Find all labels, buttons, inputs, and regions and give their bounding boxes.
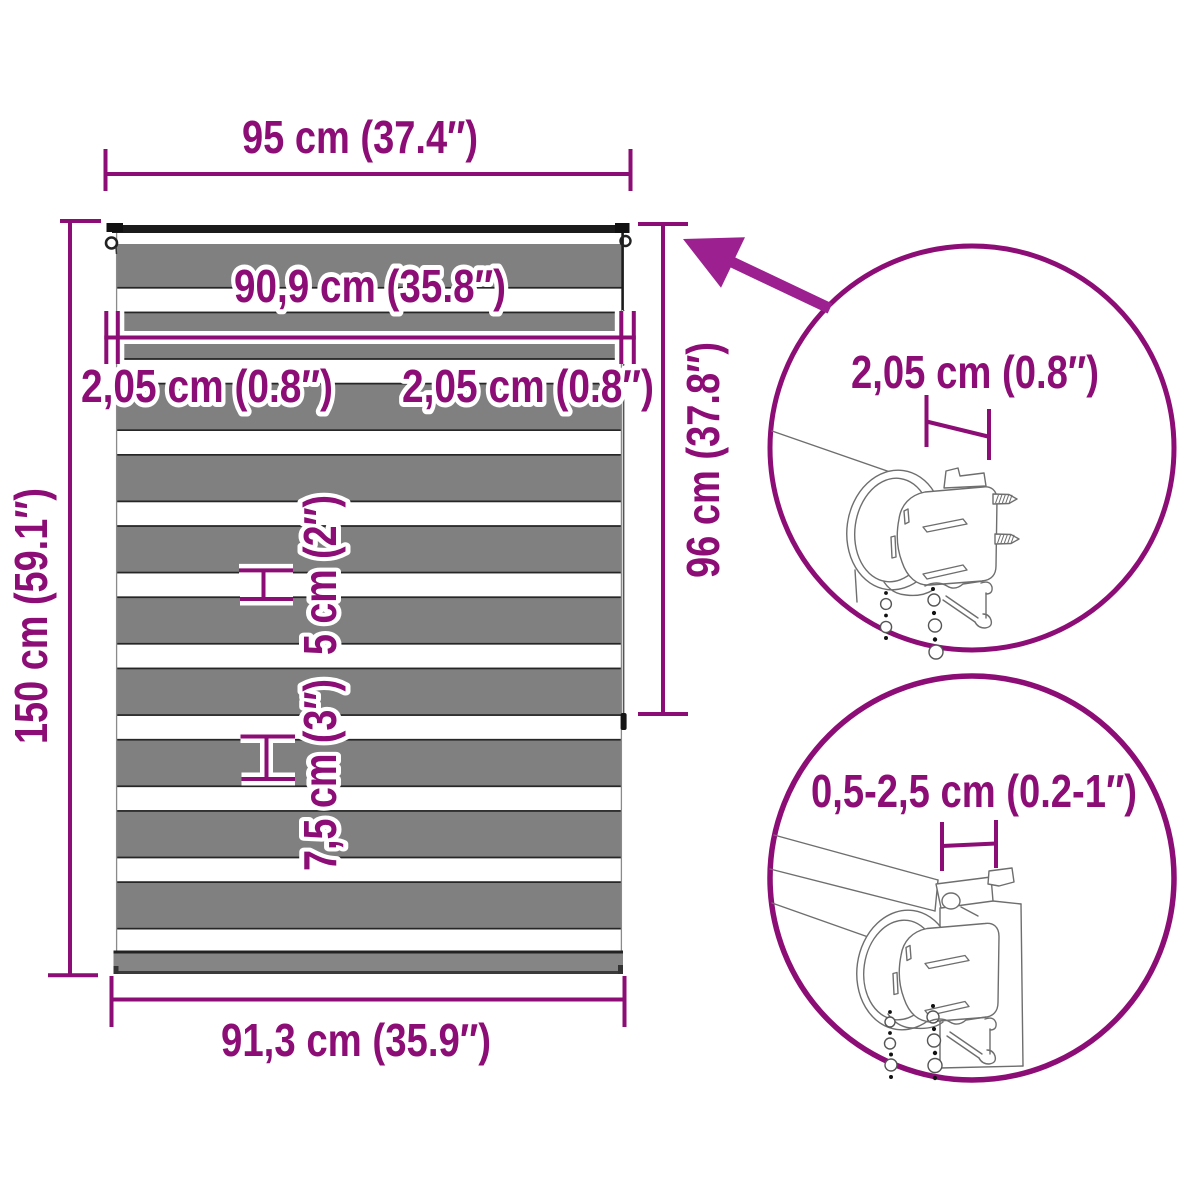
svg-text:91,3 cm (35.9″): 91,3 cm (35.9″)	[221, 1014, 491, 1066]
svg-text:96 cm (37.8″): 96 cm (37.8″)	[677, 342, 729, 578]
svg-text:95 cm (37.4″): 95 cm (37.4″)	[242, 111, 478, 163]
svg-text:0,5-2,5 cm (0.2-1″): 0,5-2,5 cm (0.2-1″)	[811, 765, 1137, 817]
svg-text:2,05 cm (0.8″): 2,05 cm (0.8″)	[81, 360, 333, 412]
svg-text:2,05 cm (0.8″): 2,05 cm (0.8″)	[402, 360, 654, 412]
svg-text:150 cm (59.1″): 150 cm (59.1″)	[5, 488, 57, 744]
svg-text:90,9 cm (35.8″): 90,9 cm (35.8″)	[234, 260, 506, 312]
svg-text:7,5 cm (3″): 7,5 cm (3″)	[294, 679, 346, 871]
svg-text:2,05 cm (0.8″): 2,05 cm (0.8″)	[851, 346, 1099, 398]
svg-text:5 cm (2″): 5 cm (2″)	[294, 495, 346, 655]
